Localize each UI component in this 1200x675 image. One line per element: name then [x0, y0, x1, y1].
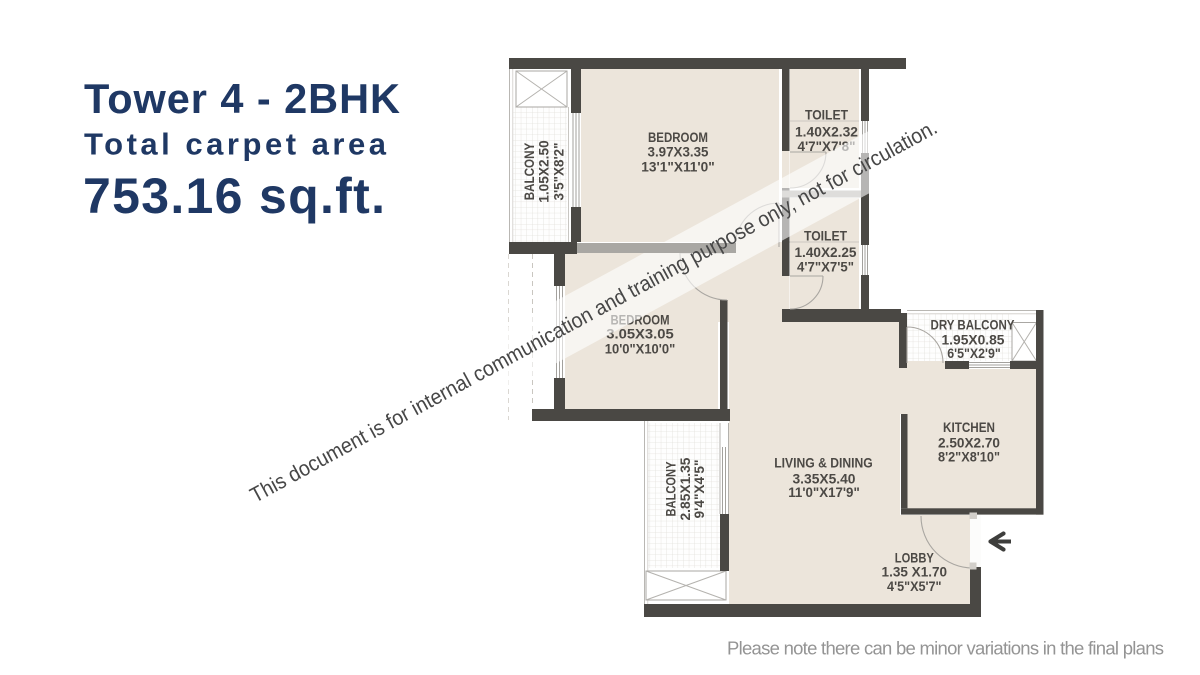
svg-text:1.35 X1.70: 1.35 X1.70: [882, 565, 948, 580]
svg-text:2.85X1.35: 2.85X1.35: [678, 457, 693, 520]
svg-text:TOILET: TOILET: [804, 229, 848, 244]
svg-text:KITCHEN: KITCHEN: [943, 420, 995, 435]
svg-text:BEDROOM: BEDROOM: [648, 130, 708, 145]
svg-text:BALCONY: BALCONY: [664, 462, 679, 517]
svg-text:Tower 4 - 2BHK: Tower 4 - 2BHK: [84, 75, 400, 122]
svg-text:1.05X2.50: 1.05X2.50: [537, 140, 552, 203]
svg-text:3'5"X8'2": 3'5"X8'2": [552, 143, 567, 201]
svg-text:2.50X2.70: 2.50X2.70: [938, 436, 1000, 451]
svg-text:BALCONY: BALCONY: [522, 143, 537, 201]
svg-text:4'7"X7'5": 4'7"X7'5": [797, 260, 854, 275]
svg-text:3.97X3.35: 3.97X3.35: [648, 145, 709, 160]
svg-text:DRY BALCONY: DRY BALCONY: [931, 317, 1015, 332]
svg-text:8'2"X8'10": 8'2"X8'10": [938, 450, 1000, 465]
svg-text:6'5"X2'9": 6'5"X2'9": [947, 346, 1001, 361]
svg-text:Total carpet area: Total carpet area: [84, 127, 387, 162]
svg-text:TOILET: TOILET: [805, 108, 849, 123]
svg-text:4'5"X5'7": 4'5"X5'7": [887, 579, 942, 594]
svg-text:Please note there can be minor: Please note there can be minor variation…: [727, 638, 1164, 659]
svg-text:11'0"X17'9": 11'0"X17'9": [788, 485, 860, 500]
svg-text:10'0"X10'0": 10'0"X10'0": [605, 342, 676, 357]
svg-text:13'1"X11'0": 13'1"X11'0": [641, 160, 715, 175]
svg-text:1.40X2.25: 1.40X2.25: [795, 245, 857, 260]
svg-text:LIVING & DINING: LIVING & DINING: [774, 456, 873, 471]
svg-text:753.16 sq.ft.: 753.16 sq.ft.: [83, 168, 385, 224]
svg-text:1.40X2.32: 1.40X2.32: [795, 124, 858, 139]
svg-text:9'4"X4'5": 9'4"X4'5": [692, 460, 707, 519]
svg-text:LOBBY: LOBBY: [895, 551, 934, 566]
